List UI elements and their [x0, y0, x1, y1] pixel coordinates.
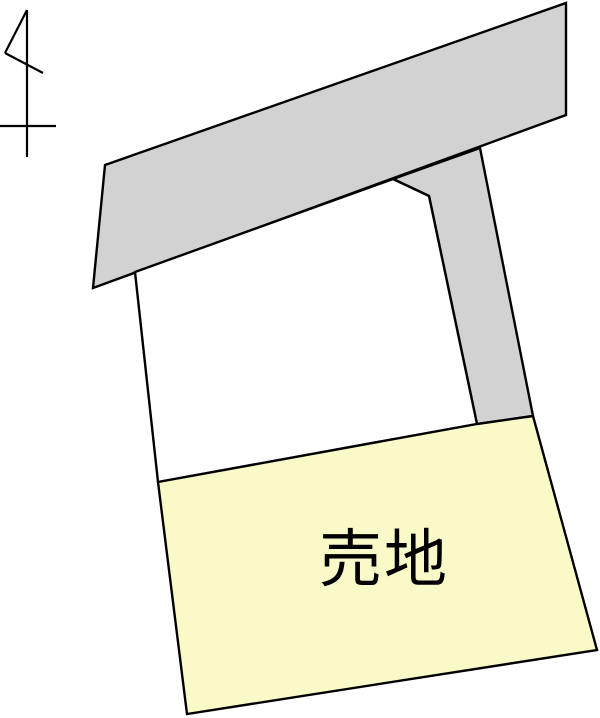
site-plan-canvas: 売地 — [0, 0, 600, 718]
sale-plot-label: 売地 — [319, 523, 449, 596]
site-plan-svg: 売地 — [0, 0, 600, 718]
